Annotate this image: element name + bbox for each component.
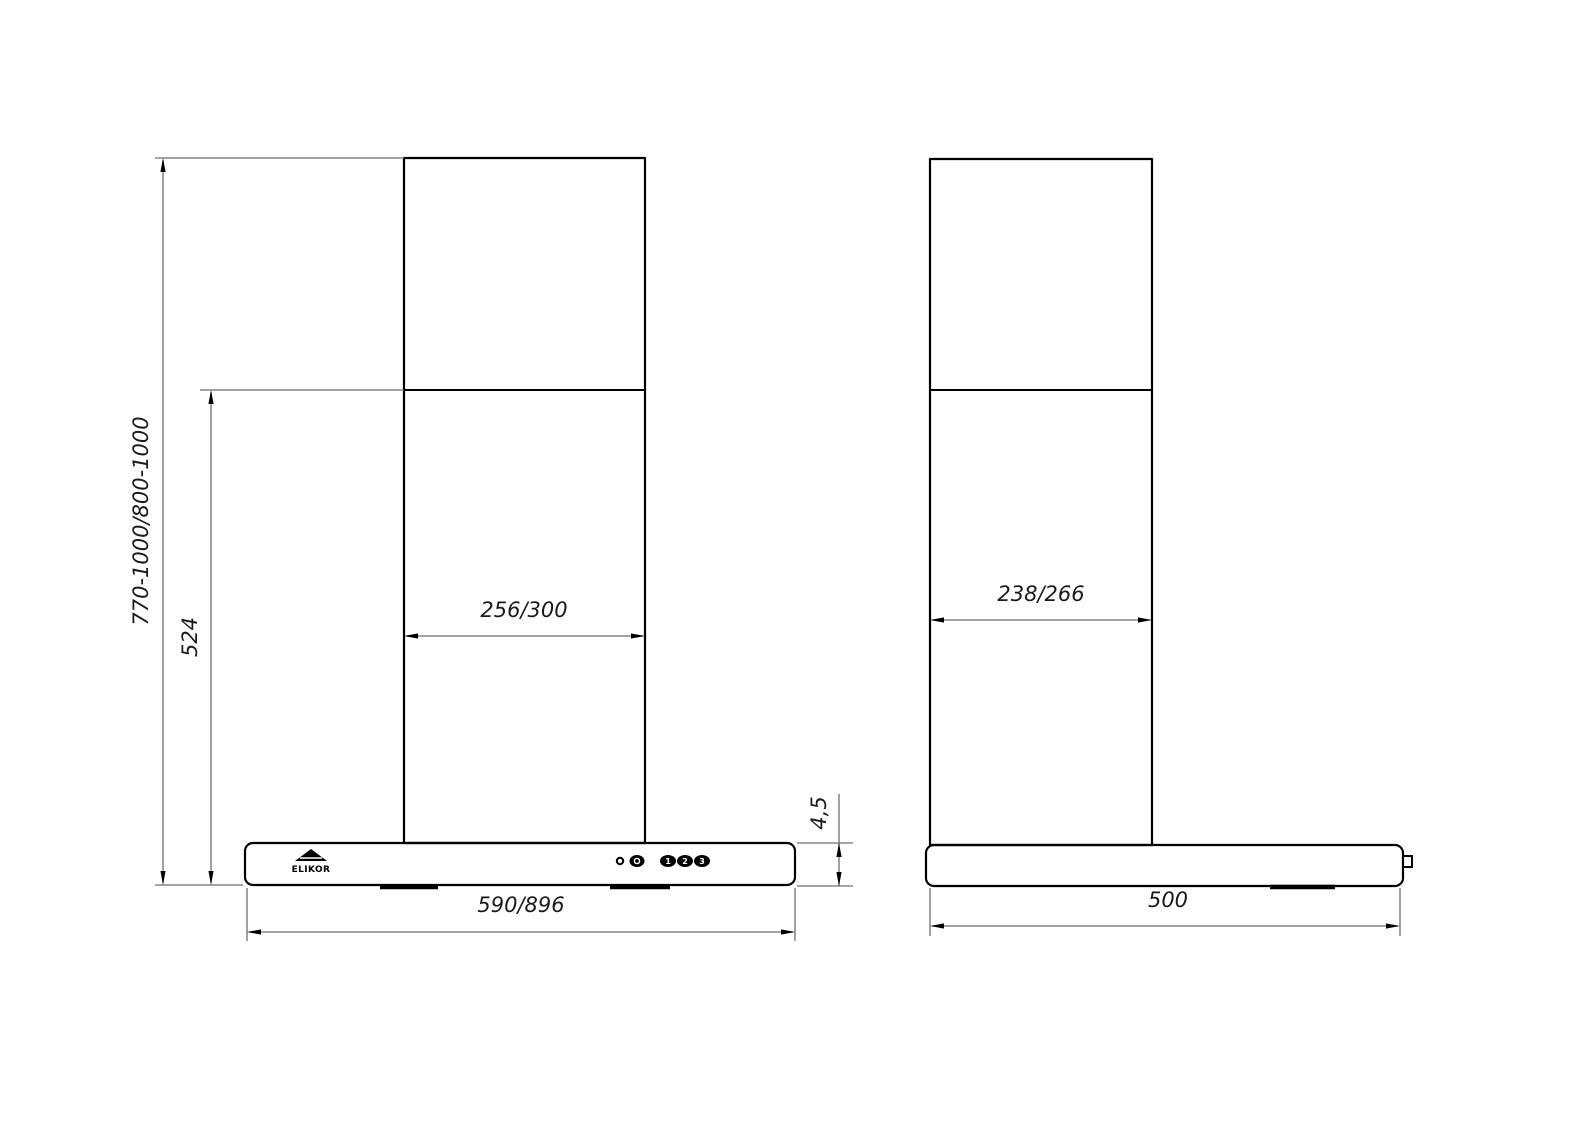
arrowhead — [247, 929, 261, 934]
speed-2-label: 2 — [682, 857, 688, 866]
dim-mounting-height-label: 770-1000/800-1000 — [129, 416, 153, 625]
side-chimney-outline — [930, 159, 1152, 845]
speed-button-3: 3 — [694, 855, 710, 867]
arrowhead — [208, 871, 213, 885]
arrowhead — [208, 390, 213, 404]
dim-chimney-height: 524 — [178, 390, 404, 885]
arrowhead — [930, 617, 944, 622]
arrowhead — [160, 871, 165, 885]
front-view: ELIKOR 1 2 3 — [245, 158, 795, 887]
logo-roof-icon — [295, 849, 327, 861]
dim-mounting-height: 770-1000/800-1000 — [129, 158, 404, 885]
dim-chimney-width-label: 256/300 — [480, 598, 567, 622]
side-hood-body — [926, 845, 1403, 886]
dim-body-width-label: 590/896 — [477, 893, 564, 917]
dim-body-height: 4,5 — [797, 794, 853, 886]
dim-chimney-width: 256/300 — [404, 598, 645, 639]
power-led-icon — [617, 858, 623, 864]
dim-chimney-depth: 238/266 — [930, 582, 1152, 623]
speed-button-2: 2 — [677, 855, 693, 867]
front-hood-body — [245, 843, 795, 885]
technical-drawing: ELIKOR 1 2 3 — [0, 0, 1588, 1123]
arrowhead — [404, 633, 418, 638]
dim-body-depth: 500 — [930, 888, 1400, 936]
arrowhead — [160, 158, 165, 172]
brand-logo: ELIKOR — [292, 849, 331, 875]
arrowhead — [631, 633, 645, 638]
logo-text: ELIKOR — [292, 865, 331, 875]
side-dimensions: 238/266 500 — [930, 582, 1400, 936]
side-view — [926, 159, 1412, 887]
speed-3-label: 3 — [699, 857, 705, 866]
speed-button-1: 1 — [660, 855, 676, 867]
side-outlet-knob — [1403, 856, 1412, 867]
arrowhead — [1386, 923, 1400, 928]
arrowhead — [930, 923, 944, 928]
light-button — [630, 855, 645, 867]
dim-body-height-label: 4,5 — [807, 796, 831, 829]
arrowhead — [836, 872, 841, 886]
drawing-svg: ELIKOR 1 2 3 — [0, 0, 1588, 1123]
dim-chimney-height-label: 524 — [178, 617, 202, 657]
dim-chimney-depth-label: 238/266 — [997, 582, 1084, 606]
front-chimney-outline — [404, 158, 645, 843]
arrowhead — [1138, 617, 1152, 622]
front-dimensions: 770-1000/800-1000 524 256/300 590/896 — [129, 158, 853, 941]
dim-body-width: 590/896 — [247, 888, 795, 941]
speed-1-label: 1 — [665, 857, 671, 866]
arrowhead — [836, 843, 841, 857]
control-panel: 1 2 3 — [617, 855, 710, 867]
dim-body-depth-label: 500 — [1148, 888, 1188, 912]
arrowhead — [781, 929, 795, 934]
